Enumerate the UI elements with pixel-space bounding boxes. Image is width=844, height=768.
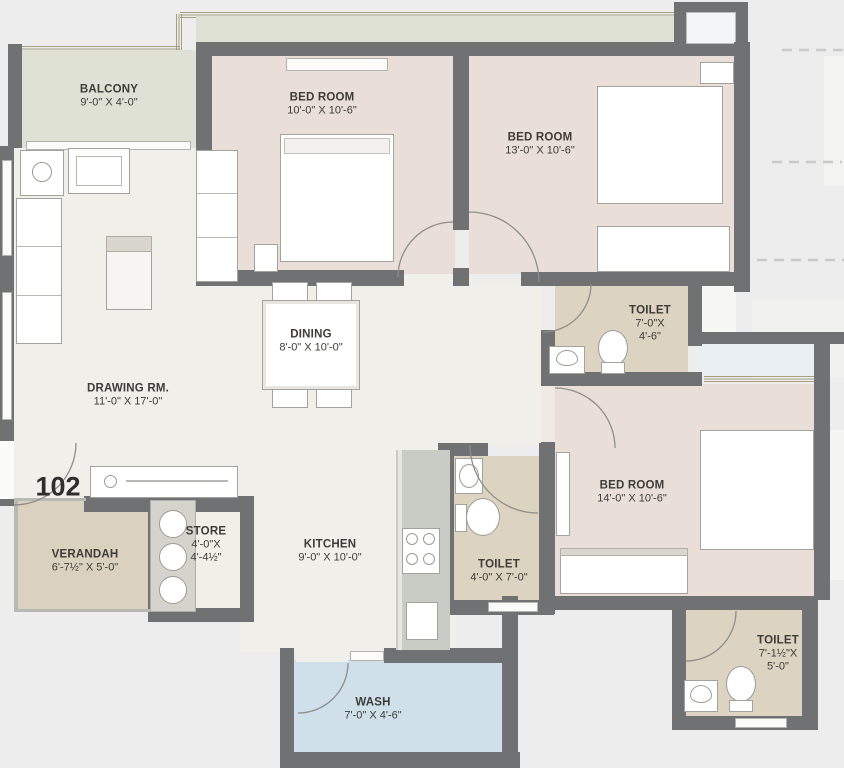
bed [597, 86, 723, 204]
tv-unit-seam [197, 237, 237, 238]
window [350, 651, 384, 661]
room-label-dining: DINING 8'-0" X 10'-0" [279, 327, 342, 354]
wc-tank [729, 700, 753, 712]
wall-segment [814, 332, 830, 600]
dresser [597, 226, 730, 272]
verandah-edge [14, 500, 18, 612]
wall-segment [541, 372, 702, 386]
bed-pillows [700, 62, 734, 84]
bedside-panel [556, 452, 570, 536]
sofa-seam [17, 246, 61, 247]
dining-chair [316, 282, 352, 302]
wall-segment [384, 648, 504, 663]
wardrobe-top [560, 548, 688, 556]
stove-burner [423, 553, 435, 565]
room-label-verandah: VERANDAH 6'-7½" X 5'-0" [52, 547, 119, 574]
basin-bowl [556, 350, 578, 366]
bedside-table [254, 244, 278, 272]
room-label-drawing-room: DRAWING RM. 11'-0" X 17'-0" [87, 381, 169, 408]
kitchen-sink [406, 602, 438, 640]
wall-segment [453, 268, 469, 286]
stove-burner [423, 533, 435, 545]
door-gap [541, 386, 555, 442]
wall-segment [521, 272, 750, 286]
room-label-balcony: BALCONY 9'-0" X 4'-0" [80, 82, 138, 109]
window [735, 718, 787, 728]
stove-burner [406, 533, 418, 545]
basin-bowl [690, 685, 712, 703]
room-label-bedroom2: BED ROOM 13'-0" X 10'-6" [505, 130, 575, 157]
door-gap [296, 650, 348, 662]
sofa-seam [17, 295, 61, 296]
table-lamp [32, 162, 52, 182]
wall-segment [539, 443, 554, 615]
toilet-wc [726, 666, 756, 702]
wall-segment [8, 44, 22, 148]
ledge-corner [700, 286, 736, 332]
armchair-cushion [76, 156, 122, 186]
wall-segment [734, 42, 750, 292]
stove-burner [406, 553, 418, 565]
shaft-pipe [159, 543, 187, 571]
bed-pillows [284, 138, 390, 154]
bed [700, 430, 814, 550]
console-decor [104, 475, 117, 488]
dining-chair [316, 388, 352, 408]
tv-unit [196, 150, 238, 282]
verandah-edge [14, 609, 152, 612]
toilet-wc [598, 330, 628, 366]
ledge-sill [704, 376, 818, 382]
window [2, 160, 12, 256]
balcony-trim [176, 14, 182, 52]
dining-chair [272, 388, 308, 408]
wall-segment [502, 596, 518, 768]
wc-tank [601, 362, 625, 374]
wall-segment [453, 42, 469, 230]
shaft-pipe [159, 576, 187, 604]
window [2, 292, 12, 420]
lobby-floor [455, 282, 541, 446]
ghost-structure [824, 56, 844, 186]
sofa [16, 198, 62, 344]
unit-number: 102 [35, 472, 80, 503]
toilet-wc [466, 498, 500, 536]
duct [686, 12, 736, 44]
window [286, 58, 388, 71]
room-label-bedroom1: BED ROOM 10'-0" X 10'-6" [287, 90, 357, 117]
console-line [126, 480, 228, 482]
floor-plan: BALCONY 9'-0" X 4'-0" BED ROOM 10'-0" X … [0, 0, 844, 768]
main-door-gap [0, 441, 14, 499]
room-label-kitchen: KITCHEN 9'-0" X 10'-0" [298, 537, 361, 564]
shaft-pipe [159, 510, 187, 538]
dining-chair [272, 282, 308, 302]
coffee-table-top [106, 236, 152, 252]
room-label-toilet2: TOILET 4'-0" X 7'-0" [470, 557, 527, 584]
wall-segment [240, 496, 254, 622]
wall-segment [280, 752, 520, 768]
room-label-bedroom3: BED ROOM 14'-0" X 10'-6" [597, 478, 667, 505]
room-label-toilet3: TOILET 7'-1½"X 5'-0" [757, 634, 799, 675]
window [488, 602, 538, 612]
wall-segment [196, 42, 748, 56]
room-label-wash: WASH 7'-0" X 4'-6" [344, 695, 401, 722]
balcony-strip [196, 16, 690, 44]
room-label-toilet1: TOILET 7'-0"X 4'-6" [629, 304, 671, 345]
ledge-floor [702, 344, 814, 376]
wall-segment [802, 596, 818, 730]
room-label-store: STORE 4'-0"X 4'-4½" [186, 525, 226, 566]
tv-unit-seam [197, 193, 237, 194]
basin-bowl [459, 464, 479, 488]
wall-segment [280, 648, 294, 768]
duct-wall [674, 2, 686, 52]
